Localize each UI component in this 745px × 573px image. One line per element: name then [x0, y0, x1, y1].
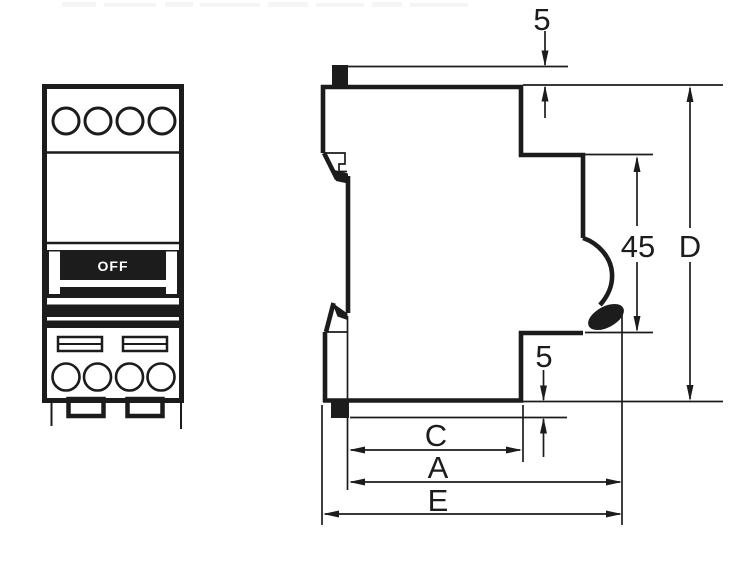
toggle-handle-gap — [60, 280, 166, 287]
front-band-lower — [47, 321, 179, 329]
dim-depth-e: E — [323, 483, 622, 518]
arrowhead-right — [606, 511, 622, 518]
side-toggle-recess-curve — [583, 238, 612, 305]
breaker-dimension-diagram: OFF — [0, 0, 745, 573]
din-clip-top — [324, 153, 348, 184]
arrowhead-left — [349, 479, 365, 486]
arrowhead-up — [542, 86, 549, 102]
din-clip-bottom-slope — [326, 303, 334, 332]
arrowhead-down — [687, 385, 694, 401]
arrowhead-down — [634, 316, 641, 332]
arrowhead-up — [687, 86, 694, 102]
arrowhead-up — [634, 156, 641, 172]
terminal-hole — [53, 364, 80, 391]
arrowhead-up — [540, 418, 547, 434]
side-outline-upper — [323, 87, 583, 238]
dim-label-d: D — [679, 229, 701, 264]
dim-front-recess-height: 45 — [621, 156, 655, 332]
terminal-hole — [84, 364, 111, 391]
front-band-upper — [47, 305, 179, 318]
rear-pin-top — [332, 65, 348, 85]
toggle-switch: OFF — [47, 250, 179, 298]
dim-bottom-clip-offset: 5 — [535, 339, 552, 457]
arrowhead-down — [540, 386, 547, 402]
dim-label-e: E — [428, 483, 449, 518]
toggle-rail-right — [166, 252, 177, 295]
arrowhead-left — [349, 447, 365, 454]
din-clip-bottom — [326, 303, 348, 333]
arrowhead-right — [506, 447, 522, 454]
top-terminal-holes — [53, 108, 175, 134]
bottom-terminal-holes — [53, 364, 175, 391]
dim-depth-c: C — [349, 418, 522, 454]
dimension-annotations: 5 5 45 D — [323, 2, 701, 518]
terminal-hole — [149, 108, 175, 134]
terminal-slots — [58, 337, 167, 351]
dim-depth-a: A — [349, 450, 622, 486]
dim-label-c: C — [425, 418, 447, 453]
terminal-hole — [85, 108, 111, 134]
terminal-hole — [53, 108, 79, 134]
front-view: OFF — [45, 87, 182, 430]
dim-label-45: 45 — [621, 229, 655, 264]
rear-pin-bottom — [331, 403, 349, 419]
terminal-hole — [116, 364, 143, 391]
terminal-hole — [117, 108, 143, 134]
arrowhead-left — [323, 511, 339, 518]
toggle-rail-left — [49, 252, 60, 295]
side-view — [322, 65, 723, 525]
terminal-hole — [148, 364, 175, 391]
arrowhead-right — [606, 479, 622, 486]
arrowhead-down — [542, 51, 549, 67]
toggle-off-label: OFF — [98, 258, 129, 274]
dim-label-bottom-5: 5 — [535, 339, 552, 374]
dim-label-a: A — [428, 450, 449, 485]
dim-top-clip-offset: 5 — [533, 2, 550, 118]
dim-overall-height: D — [679, 86, 701, 401]
technical-drawing-page: OFF — [0, 0, 745, 573]
dim-label-top-5: 5 — [533, 2, 550, 37]
cropped-text-artifact — [62, 2, 468, 7]
